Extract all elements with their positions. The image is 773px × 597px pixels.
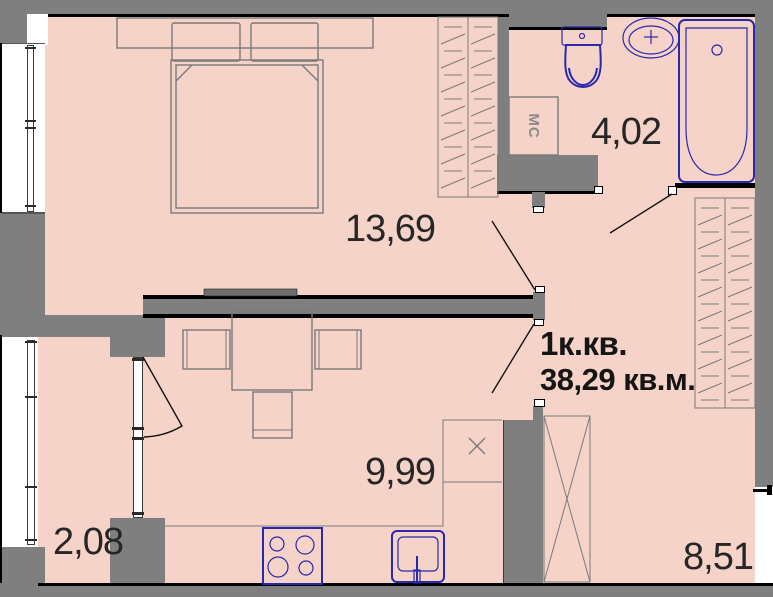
wardrobe-hatch-line	[728, 311, 752, 321]
wardrobe-hatch-line	[728, 215, 752, 225]
burner	[296, 536, 314, 554]
wardrobe-hatch-line	[698, 287, 722, 297]
bed-headboard	[117, 18, 373, 48]
wardrobe-hatch-line	[698, 335, 722, 345]
burner	[268, 557, 288, 577]
wardrobe-hatch-line	[698, 311, 722, 321]
wardrobe-hatch-line	[728, 263, 752, 273]
toilet-rim	[569, 68, 597, 85]
wardrobe-hatch-line	[698, 383, 722, 393]
wardrobe-hatch-line	[728, 239, 752, 249]
washing-machine-label: МС	[524, 106, 542, 146]
toilet-bowl	[565, 45, 601, 87]
chair-right	[315, 330, 361, 369]
area-label-hallway: 8,51	[668, 538, 768, 578]
wardrobe-hatch-line	[471, 154, 495, 164]
area-label-balcony: 2,08	[38, 523, 138, 563]
bed	[117, 18, 373, 213]
wardrobe-hatch-line	[441, 58, 465, 68]
wardrobe-hatch-line	[471, 34, 495, 44]
chair-left	[183, 330, 230, 369]
living-door-leaf	[492, 324, 534, 393]
wardrobe-hatch-line	[728, 359, 752, 369]
wardrobe-hatch-line	[471, 106, 495, 116]
area-label-kitchen: 9,99	[350, 453, 450, 493]
wardrobe-hatch-line	[441, 178, 465, 188]
bathroom-door-leaf	[610, 194, 672, 233]
apartment-area: 38,29 кв.м.	[540, 363, 695, 398]
wardrobe-hatch-line	[471, 130, 495, 140]
bed-blanket	[176, 65, 318, 208]
wardrobe-hatch-line	[698, 239, 722, 249]
wardrobe-hatch-line	[728, 383, 752, 393]
table	[232, 312, 312, 390]
wardrobe-hatch-line	[698, 359, 722, 369]
bed-body	[171, 60, 323, 213]
burner	[299, 561, 313, 575]
toilet	[562, 27, 602, 87]
apartment-type: 1к.кв.	[540, 326, 695, 363]
dining-set	[183, 312, 361, 438]
wardrobe-hatch-line	[471, 58, 495, 68]
wardrobe-hatch-line	[441, 34, 465, 44]
toilet-tank	[562, 27, 602, 45]
bedroom-door-leaf	[492, 221, 535, 290]
tub-inner	[686, 28, 747, 175]
wardrobe-hatch-line	[441, 154, 465, 164]
wardrobe-bedroom	[438, 17, 498, 197]
kitchen-sink	[392, 531, 444, 583]
apartment-title: 1к.кв. 38,29 кв.м.	[540, 326, 695, 398]
chair-bottom	[253, 392, 292, 438]
wardrobe-hatch-line	[441, 130, 465, 140]
bathtub	[679, 20, 754, 182]
wardrobe-hatch-line	[698, 263, 722, 273]
floor-plan: 13,69 4,02 9,99 2,08 8,51 1к.кв. 38,29 к…	[0, 0, 773, 597]
wardrobe-hatch-line	[698, 215, 722, 225]
wardrobe-hatch-line	[441, 82, 465, 92]
toilet-button	[580, 34, 585, 39]
tub-drain	[712, 45, 722, 55]
wardrobe-hatch-line	[471, 178, 495, 188]
burner	[270, 537, 284, 551]
kitchen-counter	[165, 420, 502, 526]
area-label-bedroom: 13,69	[330, 210, 450, 250]
wardrobe-cross	[544, 416, 590, 582]
area-label-bathroom: 4,02	[576, 113, 676, 153]
blanket-fold	[302, 65, 318, 81]
balcony-door-swing	[143, 357, 182, 437]
pillow	[251, 23, 318, 61]
bathroom-sink	[623, 18, 679, 58]
wardrobe-hatch-line	[728, 287, 752, 297]
tv-console	[204, 289, 297, 296]
plan-drawing	[0, 0, 773, 597]
wardrobe-hatch-line	[441, 106, 465, 116]
blanket-fold	[176, 65, 192, 81]
pillow	[172, 23, 240, 61]
wardrobe-hallway	[695, 198, 755, 408]
counter-outline	[165, 420, 502, 526]
wardrobe-hatch-line	[471, 82, 495, 92]
stove	[263, 528, 322, 584]
wardrobe-hatch-line	[728, 335, 752, 345]
tub-outline	[679, 20, 754, 182]
